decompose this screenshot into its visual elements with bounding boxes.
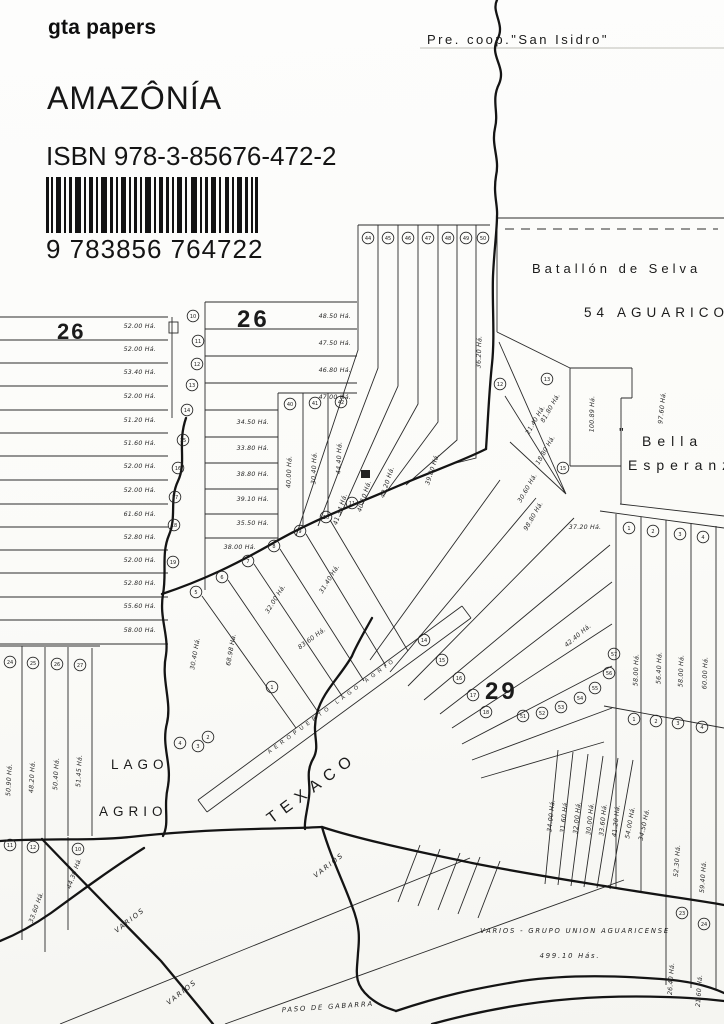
parcel-area-label: 46.80 Há. — [319, 366, 351, 374]
parcel-area-label: 47.50 Há. — [319, 339, 351, 347]
parcel-area-label: 36.20 Há. — [474, 336, 483, 369]
parcel-area-label: 44.40 Há. — [334, 442, 343, 475]
parcel-number-badge: 10 — [187, 310, 199, 322]
parcel-area-label: 48.20 Há. — [27, 760, 37, 793]
parcel-area-label: 52.80 Há. — [124, 579, 156, 587]
parcel-number: 15 — [439, 658, 445, 664]
parcel-number: 12 — [30, 845, 36, 851]
parcel-number-badge: 2 — [647, 525, 659, 537]
parcel-number: 7 — [246, 559, 249, 565]
parcel-number: 15 — [180, 438, 186, 444]
label-varios-3: VARIOS — [165, 978, 198, 1006]
parcel-number: 18 — [483, 710, 489, 716]
parcel-area-label: 58.00 Há. — [631, 654, 640, 687]
parcel-number-badge: 10 — [72, 843, 84, 855]
parcel-area-label: 32.00 Há. — [571, 801, 582, 834]
parcel-number: 2 — [654, 719, 657, 725]
parcel-number: 40 — [287, 402, 293, 408]
parcel-number-badge: 40 — [284, 398, 296, 410]
cover-title: AMAZÔNÍA — [47, 80, 222, 117]
parcel-area-label: 60.00 Há. — [700, 657, 709, 690]
parcel-number: 3 — [196, 744, 199, 750]
river-center — [305, 618, 372, 829]
parcel-number: 1 — [270, 685, 273, 691]
parcel-area-labels: 52.00 Há. 52.00 Há. 53.40 Há. 52.00 Há. … — [4, 312, 709, 1007]
river-west — [162, 418, 186, 836]
parcel-area-label: 34.50 Há. — [637, 808, 652, 841]
parcel-area-label: 68.98 Há. — [224, 633, 238, 666]
parcel-number: 13 — [189, 383, 195, 389]
parcel-number: 18 — [171, 523, 177, 529]
parcel-number-badge: 57 — [608, 648, 620, 660]
parcel-number: 42 — [338, 400, 344, 406]
boundary-west — [0, 827, 322, 841]
label-bella: Bella — [642, 433, 703, 449]
parcel-area-label: 58.00 Há. — [124, 626, 156, 634]
parcel-number: 11 — [195, 339, 201, 345]
parcel-number: 4 — [178, 741, 181, 747]
parcel-number-badge: 12 — [494, 378, 506, 390]
parcel-number-badge: 3 — [674, 528, 686, 540]
parcel-area-label: 52.00 Há. — [124, 322, 156, 330]
parcel-number-badge: 41 — [309, 397, 321, 409]
parcel-number: 11 — [349, 501, 355, 507]
parcel-number: 3 — [676, 721, 679, 727]
parcel-number: 26 — [54, 662, 60, 668]
parcel-number-badge: 13 — [541, 373, 553, 385]
parcel-number-badge: 3 — [192, 740, 204, 752]
ean-digits: 9 783856 764722 — [46, 234, 263, 265]
label-aguarico: 54 AGUARICO — [584, 305, 724, 320]
parcel-number-badge: 24 — [698, 918, 710, 930]
parcel-number-badge: 53 — [555, 701, 567, 713]
parcel-number: 2 — [651, 529, 654, 535]
parcel-area-label: 61.60 Há. — [124, 510, 156, 518]
parcel-area-label: 34.50 Há. — [237, 418, 269, 426]
parcel-number: 1 — [627, 526, 630, 532]
parcel-area-label: 52.00 Há. — [124, 392, 156, 400]
parcel-number: 56 — [606, 671, 612, 677]
parcel-number-badge: 13 — [186, 379, 198, 391]
parcel-number: 5 — [194, 590, 197, 596]
parcel-number: 55 — [592, 686, 598, 692]
parcel-number-badge: 27 — [74, 659, 86, 671]
parcel-area-label: 53.40 Há. — [124, 368, 156, 376]
parcel-area-label: 30.40 Há. — [188, 637, 202, 670]
parcel-number: 10 — [75, 847, 81, 853]
parcel-number: 48 — [445, 236, 451, 242]
parcel-number: 9 — [298, 529, 301, 535]
parcel-number-badge: 16 — [453, 672, 465, 684]
parcel-number-badge: 23 — [676, 907, 688, 919]
parcel-number-badge: 4 — [697, 531, 709, 543]
parcel-number-badge: 15 — [557, 462, 569, 474]
label-batallon: Batallón de Selva — [532, 261, 701, 276]
book-cover-page: Pre. coop."San Isidro" Batallón de Selva… — [0, 0, 724, 1024]
parcel-area-label: 21.60 Há. — [694, 974, 704, 1007]
parcel-number: 13 — [544, 377, 550, 383]
parcel-number: 16 — [175, 466, 181, 472]
parcel-area-label: 26.40 Há. — [666, 962, 676, 995]
label-varios-total: 499.10 Hás. — [540, 952, 601, 960]
road-diagonal — [162, 449, 486, 594]
parcel-area-label: 52.00 Há. — [124, 345, 156, 353]
parcel-number-badge: 55 — [589, 682, 601, 694]
parcel-area-label: 59.40 Há. — [698, 860, 708, 893]
parcel-number-badge: 1 — [628, 713, 640, 725]
river-south — [322, 827, 396, 1011]
parcel-area-label: 40.10 Há. — [355, 480, 373, 513]
parcel-area-label: 38.00 Há. — [224, 543, 256, 551]
parcel-number: 11 — [7, 843, 13, 849]
parcel-area-label: 51.60 Há. — [124, 439, 156, 447]
parcel-number-badge: 12 — [191, 358, 203, 370]
parcel-number: 49 — [463, 236, 469, 242]
label-aeropuerto: AEROPUERTO LAGO AGRIO — [267, 657, 398, 755]
parcel-area-label: 30.00 Há. — [584, 802, 595, 835]
parcel-area-label: 32.00 Há. — [263, 583, 287, 615]
parcel-number-badge: 11 — [192, 335, 204, 347]
parcel-area-label: 31.40 Há. — [317, 563, 341, 595]
parcel-area-label: 83.60 Há. — [296, 626, 327, 652]
label-lago: LAGO — [111, 757, 169, 772]
parcel-number: 23 — [679, 911, 685, 917]
parcel-number-badge: 52 — [536, 707, 548, 719]
parcel-number: 12 — [194, 362, 200, 368]
parcel-area-label: 56.40 Há. — [654, 652, 663, 685]
parcel-number-badge: 1 — [623, 522, 635, 534]
label-block-26-left: 26 — [57, 319, 85, 344]
parcel-number: 17 — [172, 495, 178, 501]
parcel-number: 1 — [632, 717, 635, 723]
parcel-number-badge: 19 — [167, 556, 179, 568]
parcel-number-badge: 2 — [650, 715, 662, 727]
parcel-number: 16 — [456, 676, 462, 682]
parcel-number: 12 — [497, 382, 503, 388]
parcel-number: 10 — [190, 314, 196, 320]
parcel-number-badge: 18 — [168, 519, 180, 531]
parcel-number-badge: 3 — [672, 717, 684, 729]
parcel-number-badge: 25 — [27, 657, 39, 669]
parcel-number: 25 — [30, 661, 36, 667]
parcel-number-badge: 26 — [51, 658, 63, 670]
parcel-number: 4 — [700, 725, 703, 731]
parcel-number-badge: 18 — [480, 706, 492, 718]
parcel-area-label: 40.00 Há. — [284, 456, 293, 489]
parcel-number: 52 — [539, 711, 545, 717]
parcel-area-label: 55.60 Há. — [124, 602, 156, 610]
parcel-number: 14 — [184, 408, 190, 414]
parcel-number-badge: 48 — [442, 232, 454, 244]
parcel-number-badge: 24 — [4, 656, 16, 668]
parcel-number-badge: 4 — [696, 721, 708, 733]
publisher-logo: gta papers — [48, 16, 156, 40]
parcel-number-badge: 14 — [418, 634, 430, 646]
cover-title-block: gta papers AMAZÔNÍA ISBN 978-3-85676-472… — [0, 0, 440, 280]
parcel-area-label: 48.50 Há. — [319, 312, 351, 320]
label-san-isidro: Pre. coop."San Isidro" — [427, 32, 609, 47]
parcel-number: 14 — [421, 638, 427, 644]
parcel-number-badge: 54 — [574, 692, 586, 704]
parcel-number: 50 — [480, 236, 486, 242]
parcel-area-label: 38.80 Há. — [237, 470, 269, 478]
parcel-area-label: 39.10 Há. — [237, 495, 269, 503]
label-varios-grupo: VARIOS - GRUPO UNION AGUARICENSE — [480, 927, 670, 935]
parcel-area-label: 51.45 Há. — [74, 754, 84, 787]
parcel-number-badge: 14 — [181, 404, 193, 416]
parcel-area-label: 54.00 Há. — [623, 806, 637, 839]
parcel-number-badge: 49 — [460, 232, 472, 244]
parcel-area-label: 100.89 Há. — [588, 396, 597, 433]
label-block-29: 29 — [485, 678, 518, 705]
label-agrio: AGRIO — [99, 804, 168, 819]
parcel-number-badge: 56 — [603, 667, 615, 679]
parcel-area-label: 97.60 Há. — [656, 391, 667, 424]
parcel-number-badge: 4 — [174, 737, 186, 749]
parcel-area-label: 52.00 Há. — [124, 556, 156, 564]
parcel-number: 51 — [520, 714, 526, 720]
parcel-number-badge: 1 — [266, 681, 278, 693]
parcel-area-label: 34.00 Há. — [545, 799, 556, 832]
isbn-text: ISBN 978-3-85676-472-2 — [46, 141, 337, 172]
parcel-number-badge: 15 — [436, 654, 448, 666]
parcel-number: 54 — [577, 696, 583, 702]
parcel-area-label: 51.20 Há. — [124, 416, 156, 424]
parcel-area-label: 52.30 Há. — [672, 844, 682, 877]
parcel-number: 3 — [678, 532, 681, 538]
parcel-area-label: 30.40 Há. — [309, 452, 318, 485]
label-block-26-center: 26 — [237, 306, 270, 333]
parcel-number: 8 — [272, 544, 275, 550]
parcel-number: 10 — [323, 515, 329, 521]
parcel-area-label: 35.50 Há. — [237, 519, 269, 527]
parcel-area-label: 50.90 Há. — [4, 763, 14, 796]
parcel-area-label: 98.80 Há. — [522, 500, 545, 532]
parcel-number: 19 — [170, 560, 176, 566]
parcel-number-badge: 10 — [320, 511, 332, 523]
building-symbol — [361, 470, 370, 478]
parcel-area-label: 52.00 Há. — [124, 462, 156, 470]
parcel-number-badge: 12 — [27, 841, 39, 853]
parcel-area-label: 33.60 Há. — [597, 803, 608, 836]
parcel-number: 4 — [701, 535, 704, 541]
parcel-number: 24 — [701, 922, 707, 928]
label-esperanza: Esperanza — [628, 457, 724, 473]
river-gabarra-bank2 — [432, 997, 724, 1024]
parcel-number: 57 — [611, 652, 617, 658]
parcel-number-badge: 17 — [467, 689, 479, 701]
ean-barcode — [46, 177, 258, 233]
parcel-number: 41 — [312, 401, 318, 407]
parcel-number: 2 — [206, 735, 209, 741]
building-symbol — [169, 322, 178, 333]
parcel-number: 53 — [558, 705, 564, 711]
parcel-area-label: 37.20 Há. — [569, 523, 601, 531]
parcel-number-badge: 6 — [216, 571, 228, 583]
parcel-number: 27 — [77, 663, 83, 669]
parcel-area-label: 31.60 Há. — [558, 800, 569, 833]
parcel-area-label: 52.80 Há. — [124, 533, 156, 541]
label-paso-de-gabarra: PASO DE GABARRA — [282, 1000, 375, 1014]
parcel-area-label: 58.00 Há. — [676, 655, 685, 688]
parcel-number-badge: 50 — [477, 232, 489, 244]
parcel-number: 6 — [220, 575, 223, 581]
parcel-area-label: 50.40 Há. — [51, 757, 61, 790]
parcel-number: 17 — [470, 693, 476, 699]
parcel-number-badge: 2 — [202, 731, 214, 743]
parcel-area-label: 33.80 Há. — [237, 444, 269, 452]
parcel-area-label: 42.40 Há. — [563, 622, 593, 649]
parcel-area-label: 52.00 Há. — [124, 486, 156, 494]
parcel-number: 15 — [560, 466, 566, 472]
label-bella-quote: " — [619, 425, 624, 440]
parcel-area-label: 41.34 Há. — [331, 493, 349, 526]
parcel-number: 24 — [7, 660, 13, 666]
parcel-number-badge: 5 — [190, 586, 202, 598]
